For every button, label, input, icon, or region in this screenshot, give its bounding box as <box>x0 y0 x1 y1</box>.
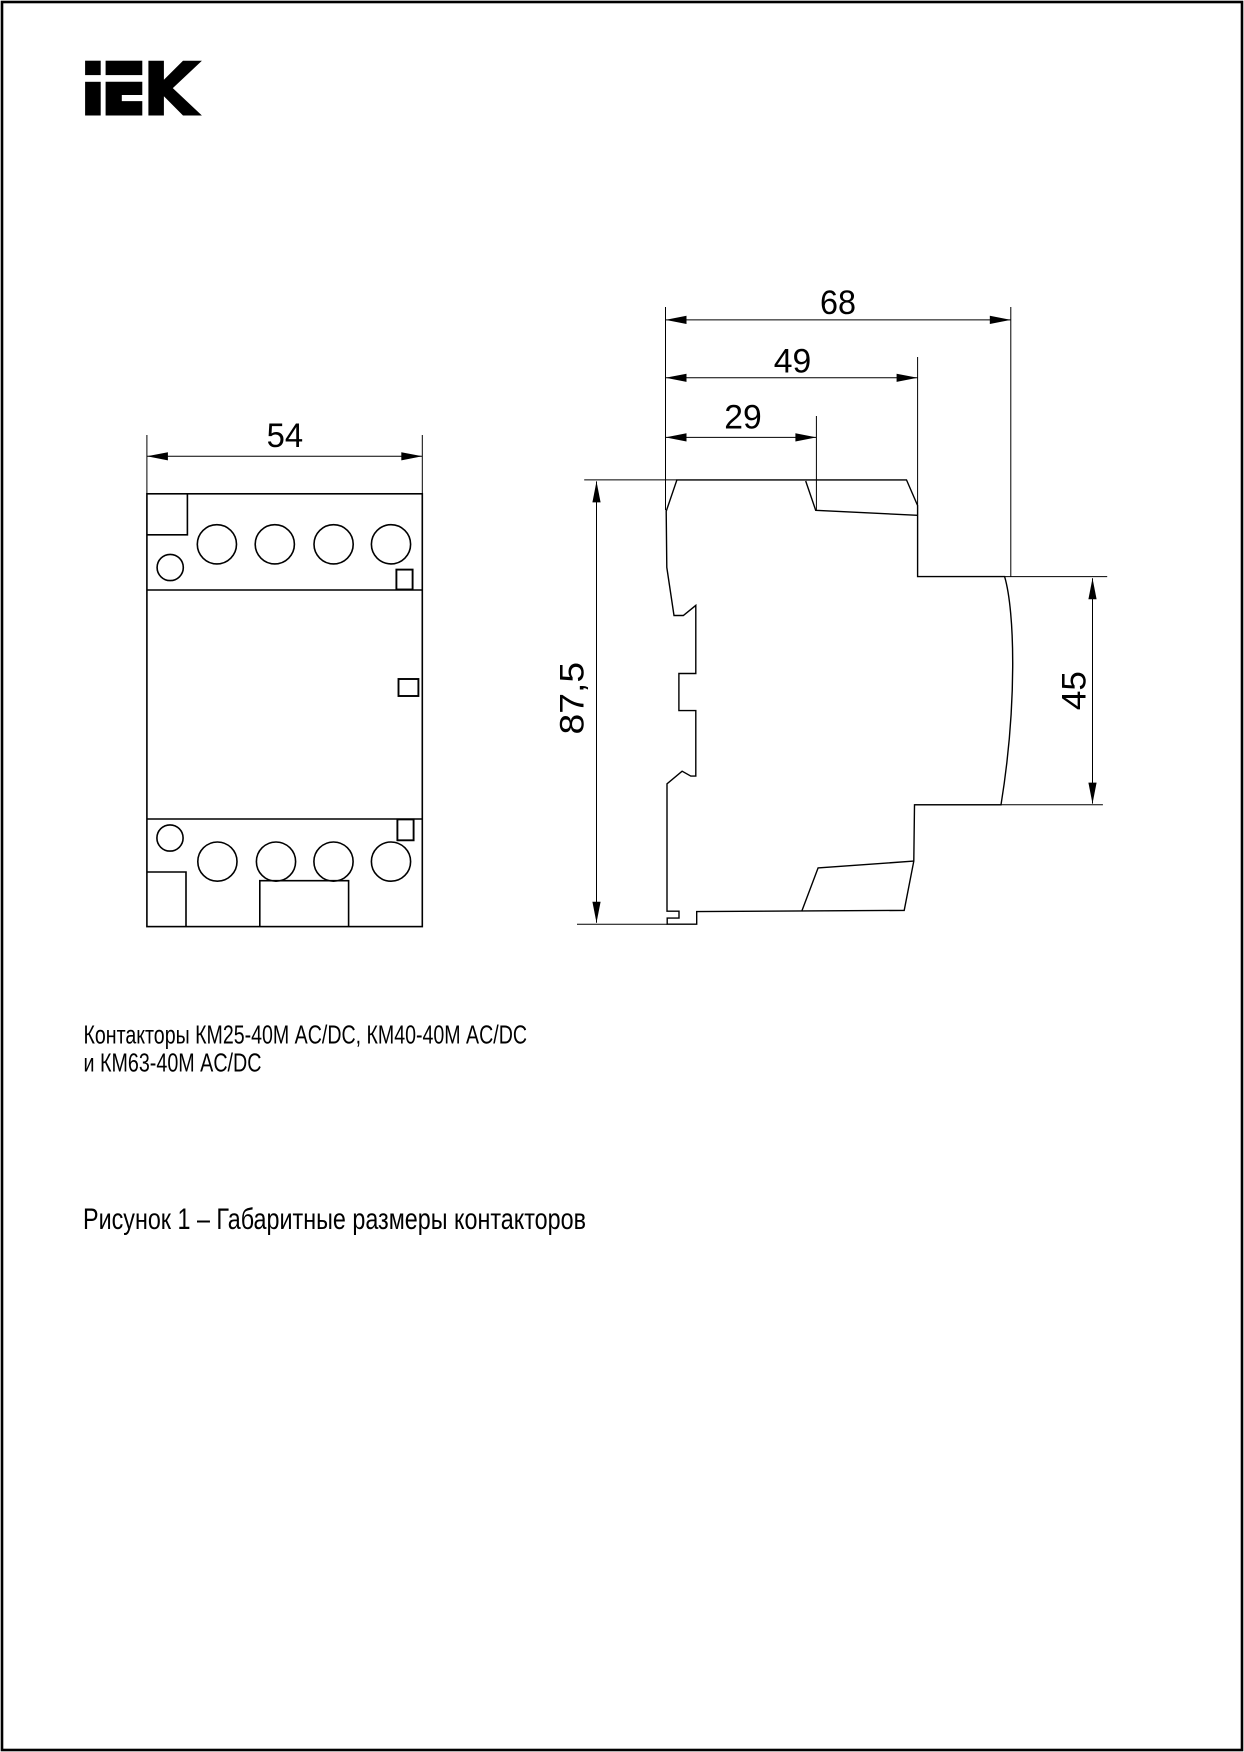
svg-text:45: 45 <box>1055 671 1093 710</box>
svg-text:87,5: 87,5 <box>554 662 592 735</box>
svg-text:и КМ63-40М AC/DC: и КМ63-40М AC/DC <box>84 1048 262 1078</box>
svg-text:68: 68 <box>820 284 856 322</box>
svg-text:29: 29 <box>724 399 762 437</box>
svg-text:Контакторы КМ25-40М AC/DC, КМ4: Контакторы КМ25-40М AC/DC, КМ40-40М AC/D… <box>84 1020 528 1050</box>
svg-text:Рисунок 1 – Габаритные размеры: Рисунок 1 – Габаритные размеры контактор… <box>83 1203 586 1236</box>
svg-text:49: 49 <box>774 343 812 381</box>
svg-text:54: 54 <box>267 417 304 455</box>
